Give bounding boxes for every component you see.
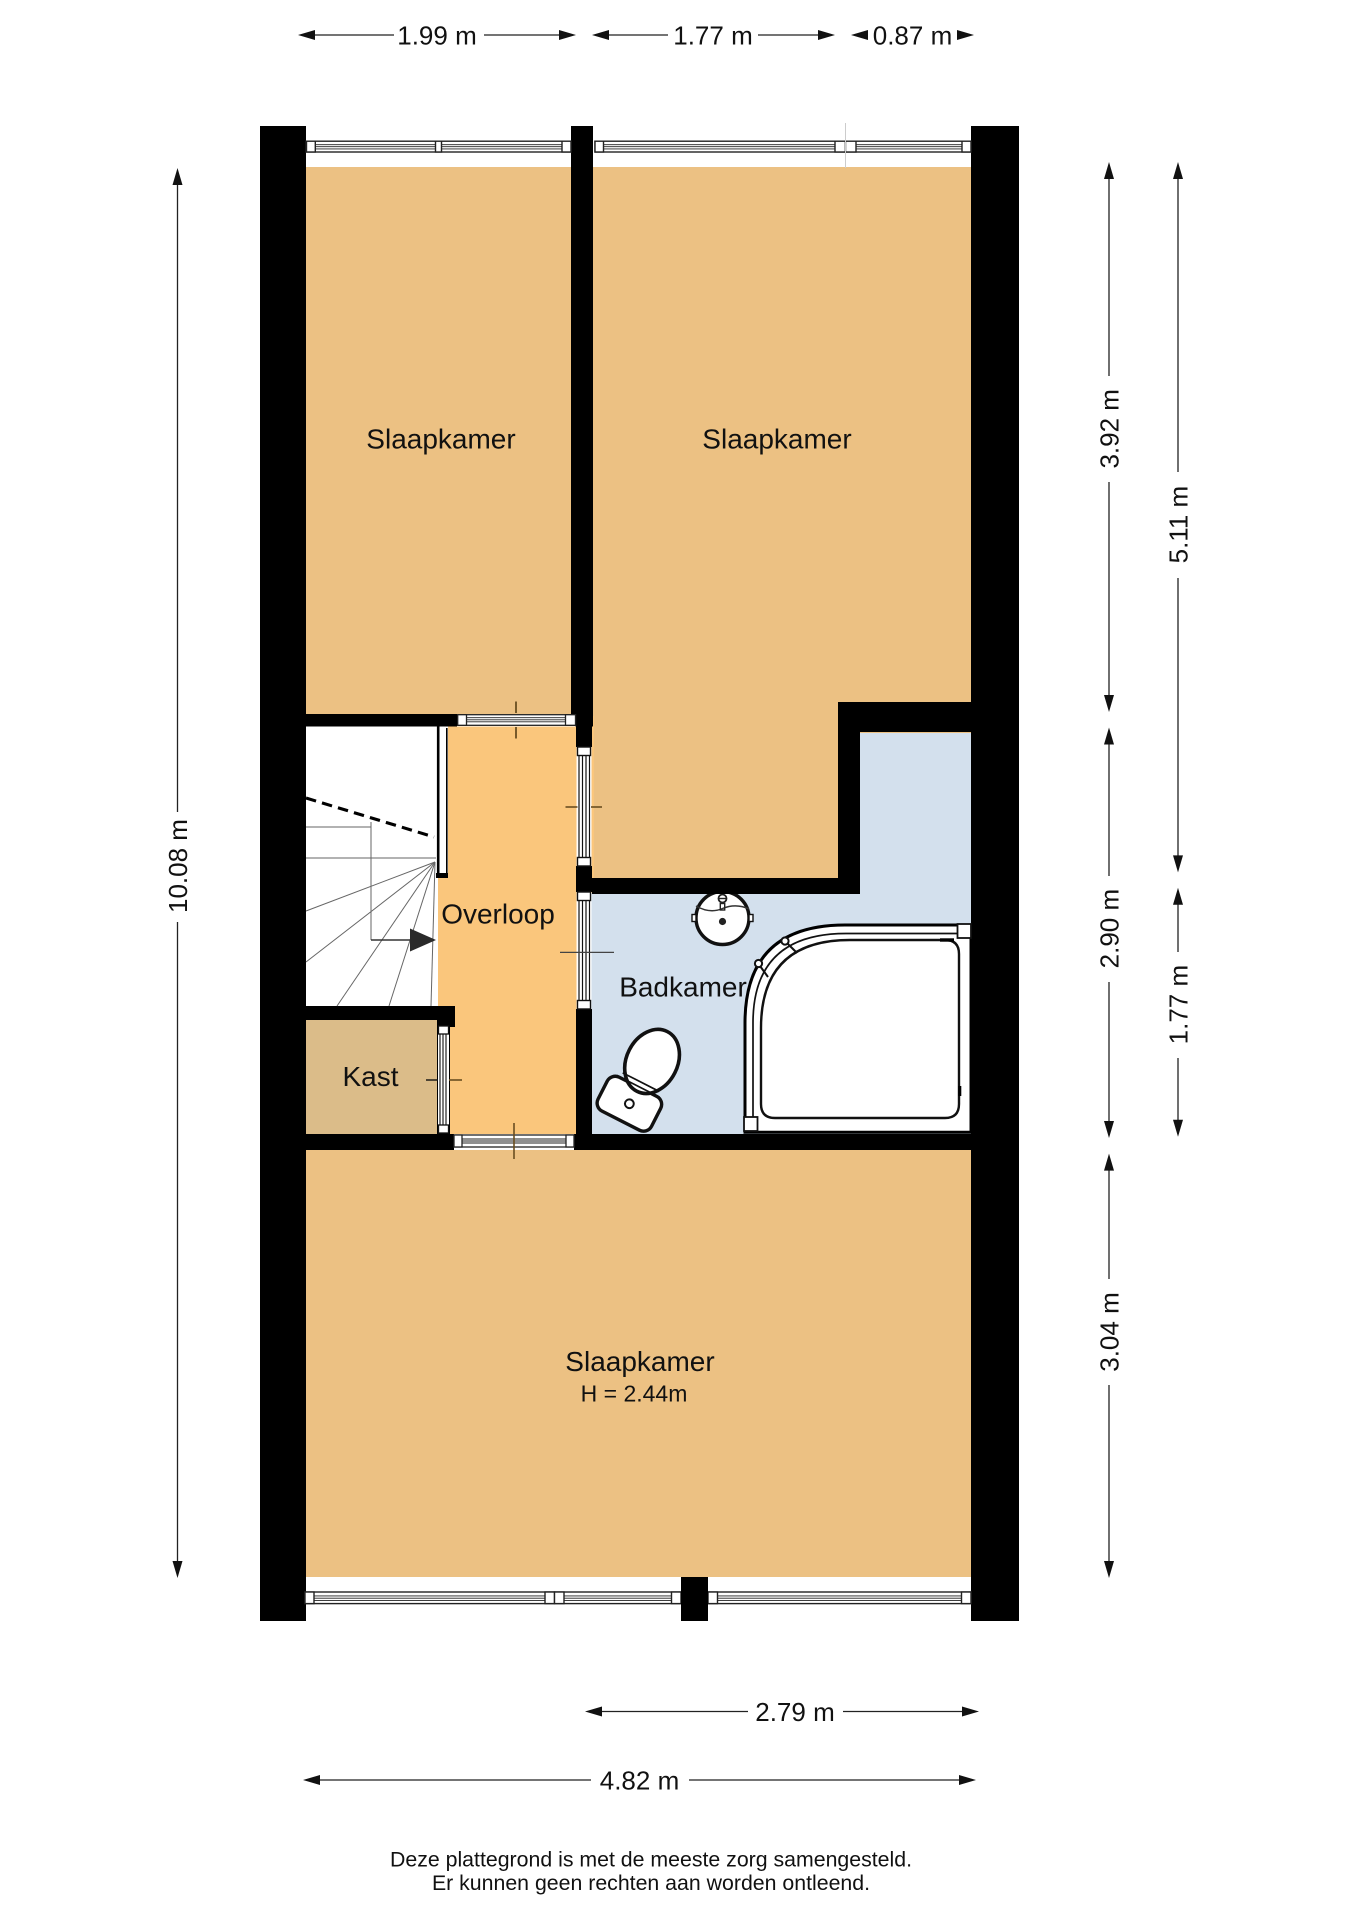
svg-text:Overloop: Overloop xyxy=(441,899,555,930)
svg-text:1.77 m: 1.77 m xyxy=(1164,965,1194,1045)
svg-text:3.92 m: 3.92 m xyxy=(1095,389,1125,469)
svg-text:Slaapkamer: Slaapkamer xyxy=(565,1346,714,1377)
svg-text:0.87 m: 0.87 m xyxy=(873,21,953,51)
svg-text:Er kunnen geen rechten aan wor: Er kunnen geen rechten aan worden ontlee… xyxy=(432,1871,870,1895)
svg-text:1.99 m: 1.99 m xyxy=(397,21,477,51)
svg-text:Deze plattegrond is met de mee: Deze plattegrond is met de meeste zorg s… xyxy=(390,1848,912,1872)
svg-text:5.11 m: 5.11 m xyxy=(1164,486,1194,564)
svg-text:4.82 m: 4.82 m xyxy=(600,1766,680,1796)
svg-text:H = 2.44m: H = 2.44m xyxy=(581,1380,688,1406)
svg-text:Badkamer: Badkamer xyxy=(619,972,747,1003)
svg-text:1.77 m: 1.77 m xyxy=(673,21,753,51)
svg-text:3.04 m: 3.04 m xyxy=(1095,1292,1125,1372)
svg-text:2.79 m: 2.79 m xyxy=(755,1697,835,1727)
svg-text:2.90 m: 2.90 m xyxy=(1095,889,1125,969)
svg-text:10.08 m: 10.08 m xyxy=(163,819,193,913)
svg-text:Kast: Kast xyxy=(342,1061,398,1092)
svg-text:Slaapkamer: Slaapkamer xyxy=(366,424,515,455)
svg-text:Slaapkamer: Slaapkamer xyxy=(702,424,851,455)
